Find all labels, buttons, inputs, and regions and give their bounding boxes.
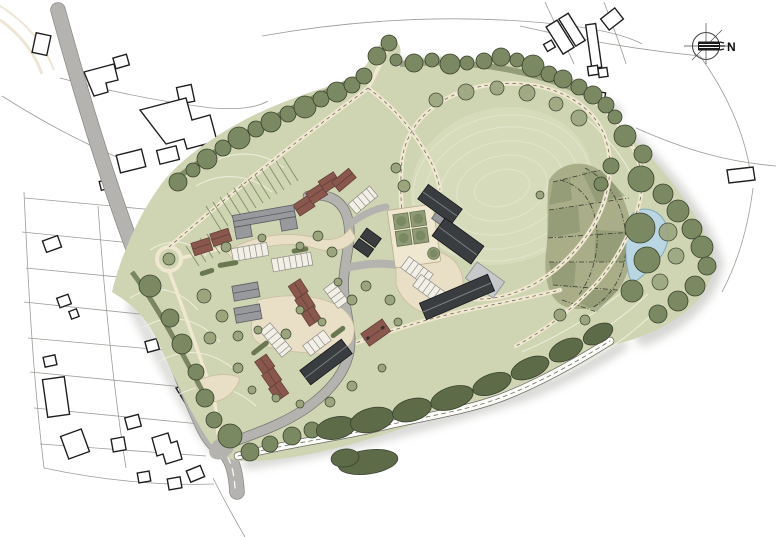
masterplan-sheet: N: [0, 0, 776, 537]
north-arrow-compass: N: [684, 23, 736, 64]
north-arrow-bar: [698, 42, 725, 51]
site-masterplan-canvas: N: [0, 0, 776, 537]
north-label: N: [727, 40, 736, 54]
